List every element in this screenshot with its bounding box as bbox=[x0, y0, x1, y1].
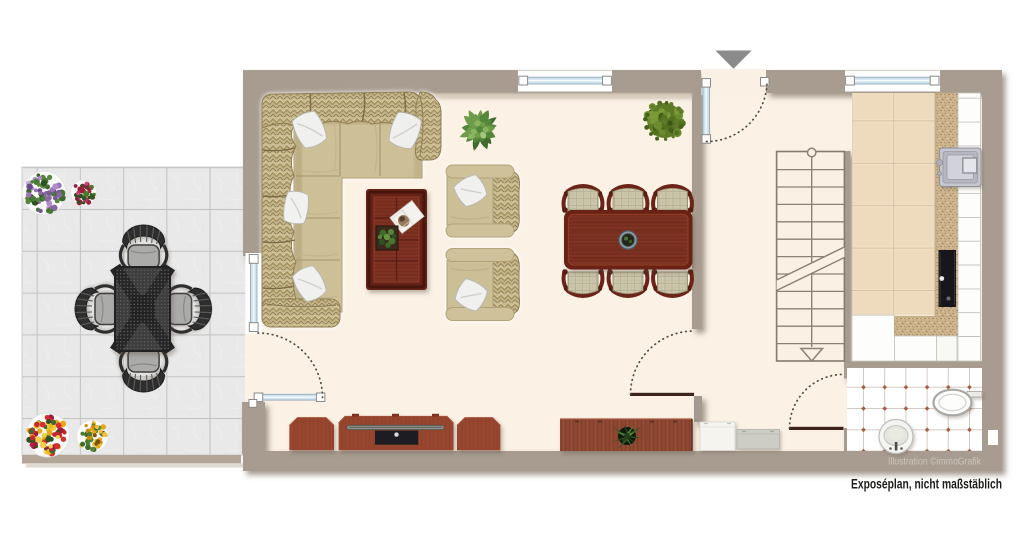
svg-text:Exposéplan, nicht maßstäblich: Exposéplan, nicht maßstäblich bbox=[851, 477, 1002, 492]
svg-text:Illustration ©immoGrafik: Illustration ©immoGrafik bbox=[888, 457, 982, 468]
